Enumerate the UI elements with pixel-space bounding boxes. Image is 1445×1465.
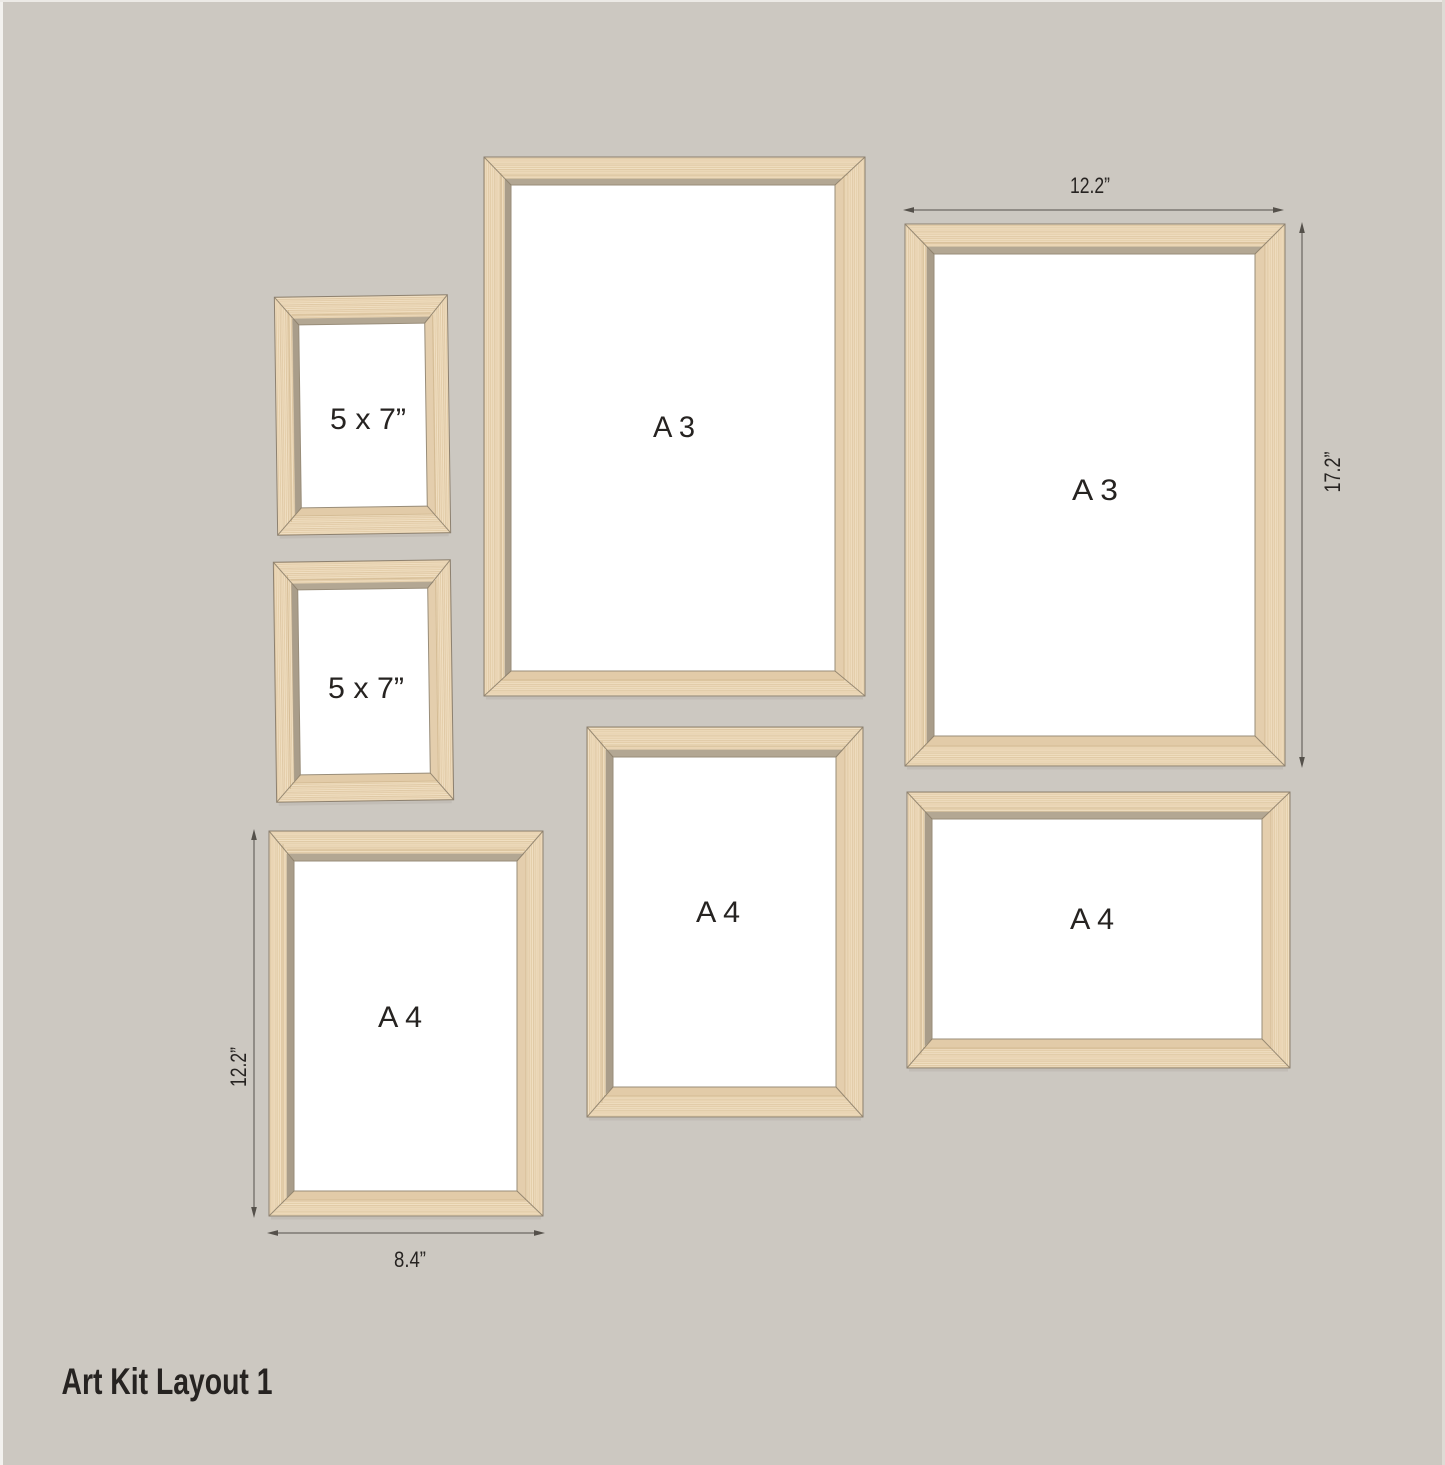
svg-text:A 3: A 3 (1072, 474, 1118, 507)
svg-text:17.2”: 17.2” (1320, 452, 1345, 493)
svg-text:8.4”: 8.4” (394, 1247, 426, 1272)
svg-text:A 4: A 4 (1070, 903, 1114, 936)
svg-text:12.2”: 12.2” (1070, 173, 1110, 198)
svg-text:12.2”: 12.2” (226, 1047, 251, 1087)
svg-text:A 4: A 4 (378, 1001, 422, 1034)
svg-text:A 4: A 4 (696, 896, 740, 929)
svg-text:5 x 7”: 5 x 7” (328, 672, 404, 705)
svg-text:5 x 7”: 5 x 7” (330, 403, 406, 436)
svg-text:A 3: A 3 (653, 411, 695, 444)
svg-text:Art Kit Layout 1: Art Kit Layout 1 (62, 1361, 273, 1402)
